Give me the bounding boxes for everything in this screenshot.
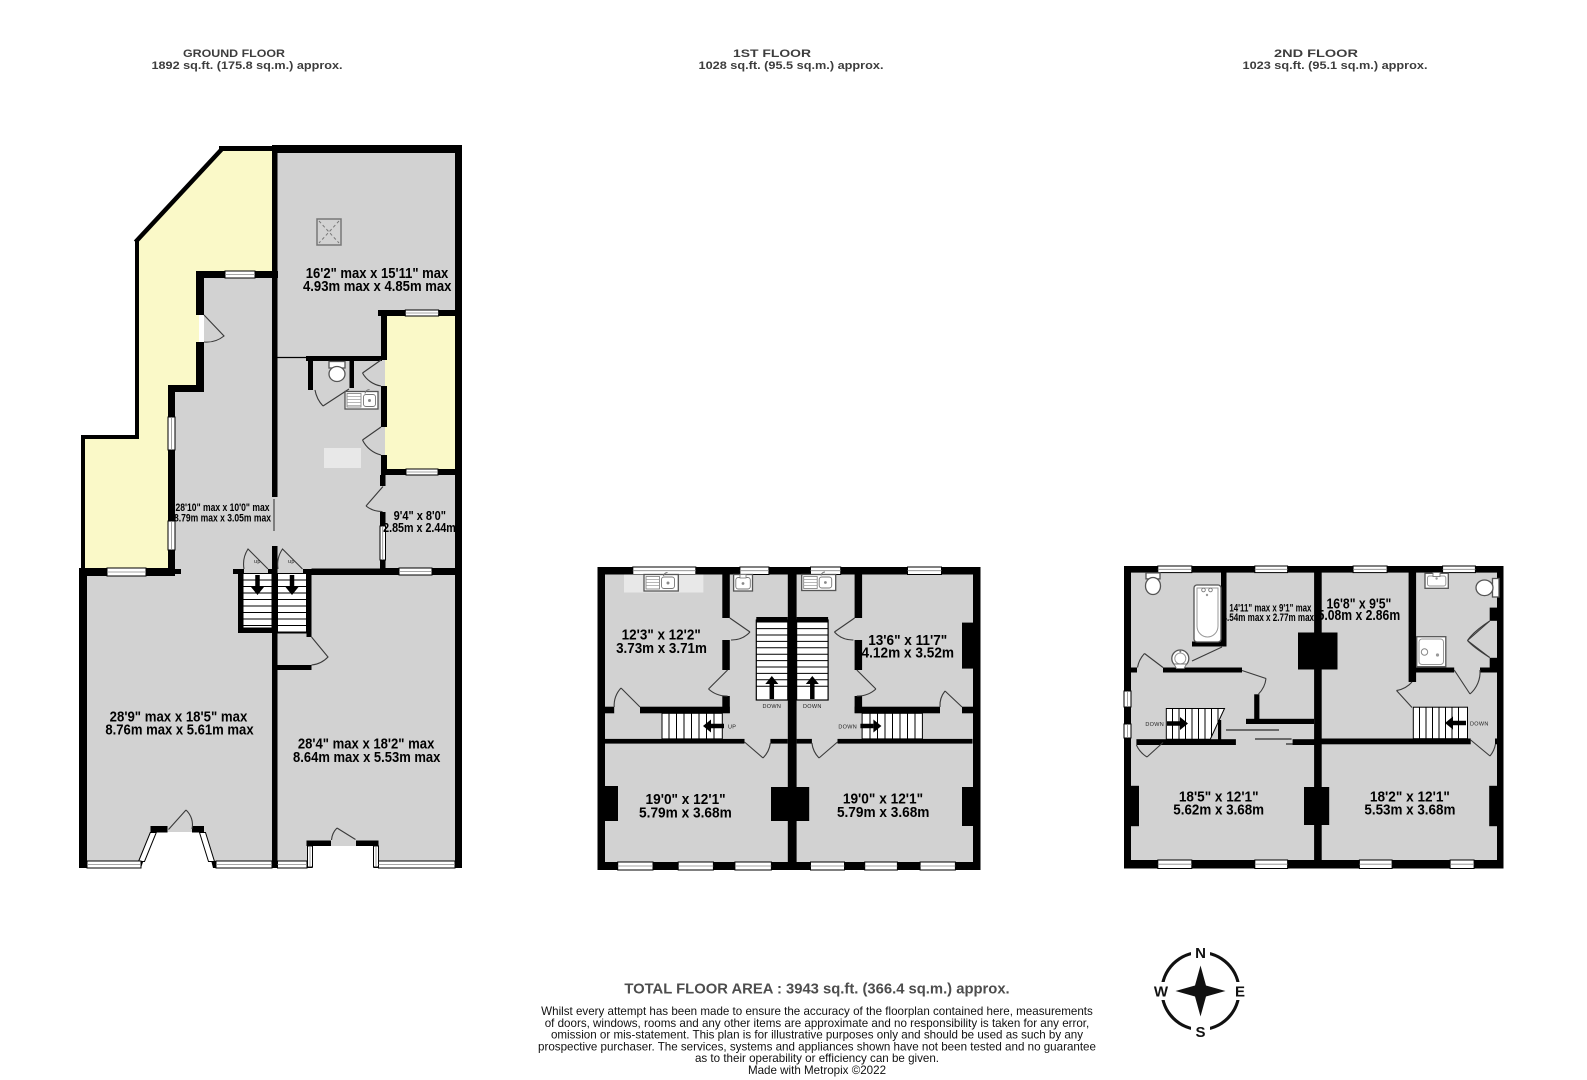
svg-text:5.62m x 3.68m: 5.62m x 3.68m <box>1173 803 1264 819</box>
svg-text:UP: UP <box>728 725 736 731</box>
svg-text:Made with Metropix ©2022: Made with Metropix ©2022 <box>748 1064 886 1077</box>
svg-text:1028 sq.ft. (95.5 sq.m.) appro: 1028 sq.ft. (95.5 sq.m.) approx. <box>699 60 884 72</box>
svg-text:DOWN: DOWN <box>1470 722 1489 728</box>
svg-text:8.79m max x 3.05m max: 8.79m max x 3.05m max <box>174 512 271 524</box>
svg-text:3.73m x 3.71m: 3.73m x 3.71m <box>616 641 707 657</box>
svg-text:8.76m max x 5.61m max: 8.76m max x 5.61m max <box>105 723 254 739</box>
svg-text:2ND FLOOR: 2ND FLOOR <box>1274 48 1358 60</box>
svg-text:4.93m max x 4.85m max: 4.93m max x 4.85m max <box>303 279 452 295</box>
svg-text:up: up <box>254 559 261 565</box>
svg-text:5.79m x 3.68m: 5.79m x 3.68m <box>837 805 930 821</box>
svg-text:N: N <box>1195 945 1206 962</box>
svg-text:TOTAL FLOOR AREA : 3943 sq.ft.: TOTAL FLOOR AREA : 3943 sq.ft. (366.4 sq… <box>624 982 1009 998</box>
svg-text:GROUND FLOOR: GROUND FLOOR <box>183 48 285 60</box>
svg-text:2.85m x 2.44m: 2.85m x 2.44m <box>383 521 456 535</box>
svg-text:4.54m max x 2.77m max: 4.54m max x 2.77m max <box>1223 612 1315 624</box>
svg-text:8.64m max x 5.53m max: 8.64m max x 5.53m max <box>293 750 441 766</box>
svg-text:5.08m x 2.86m: 5.08m x 2.86m <box>1318 608 1401 624</box>
svg-text:DOWN: DOWN <box>838 725 857 731</box>
svg-text:5.79m x 3.68m: 5.79m x 3.68m <box>639 805 732 821</box>
svg-text:DOWN: DOWN <box>762 704 781 710</box>
svg-text:DOWN: DOWN <box>803 704 822 710</box>
svg-text:E: E <box>1235 984 1245 1001</box>
svg-text:up: up <box>288 559 295 565</box>
svg-text:4.12m x 3.52m: 4.12m x 3.52m <box>862 645 955 661</box>
svg-text:W: W <box>1154 984 1169 1001</box>
svg-text:S: S <box>1195 1024 1205 1041</box>
svg-text:1023 sq.ft. (95.1 sq.m.) appro: 1023 sq.ft. (95.1 sq.m.) approx. <box>1243 60 1428 72</box>
svg-text:DOWN: DOWN <box>1145 722 1164 728</box>
svg-text:1892 sq.ft. (175.8 sq.m.) appr: 1892 sq.ft. (175.8 sq.m.) approx. <box>152 60 343 72</box>
svg-text:1ST FLOOR: 1ST FLOOR <box>733 48 811 60</box>
svg-text:5.53m x 3.68m: 5.53m x 3.68m <box>1364 803 1455 819</box>
